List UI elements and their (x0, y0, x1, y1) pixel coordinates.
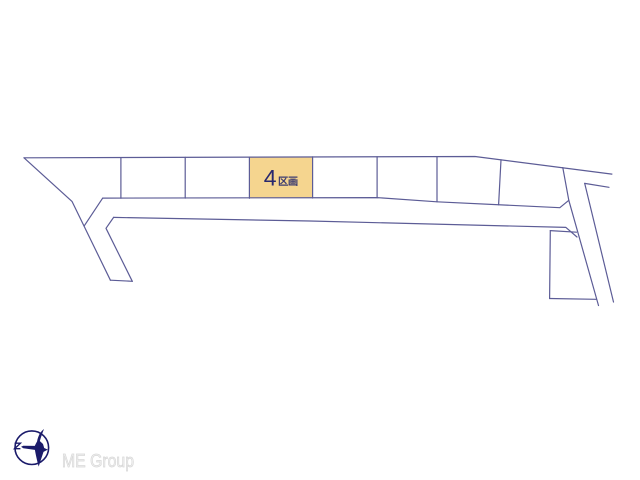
svg-text:区画: 区画 (278, 176, 298, 188)
svg-text:ME Group: ME Group (62, 450, 134, 471)
svg-text:4: 4 (264, 166, 277, 191)
